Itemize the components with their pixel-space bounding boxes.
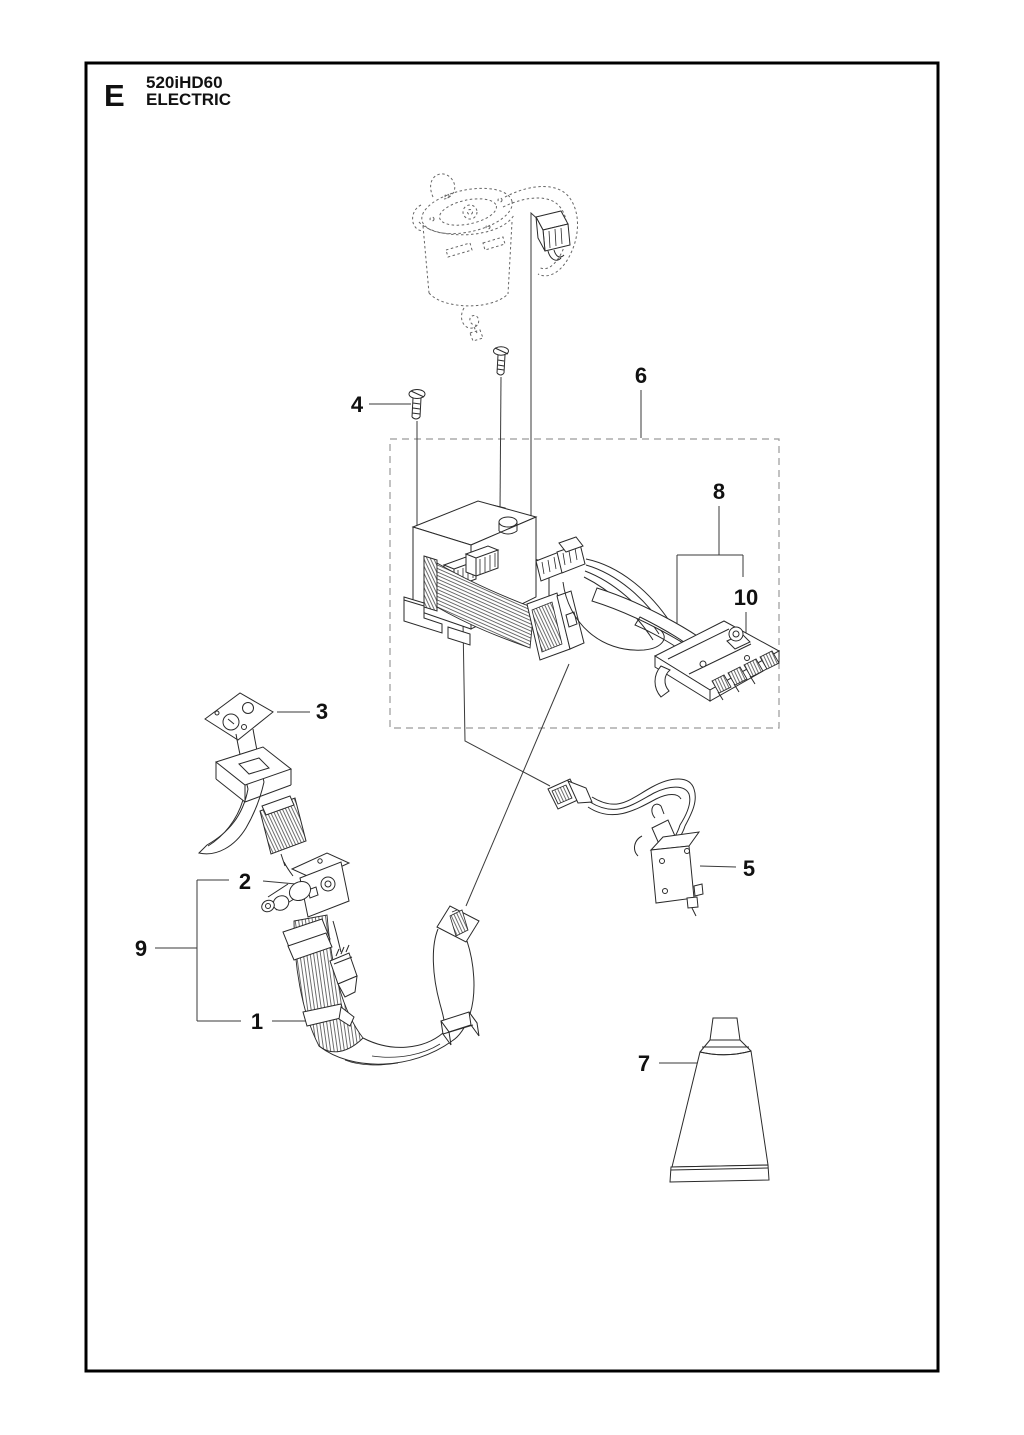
callout-5: 5 <box>743 856 755 881</box>
tube-body <box>672 1051 768 1167</box>
ribbon-connector-6 <box>527 591 584 660</box>
callout-9: 9 <box>135 936 147 961</box>
motor-pigtail <box>462 308 480 328</box>
section-title: ELECTRIC <box>146 90 231 109</box>
leader-ribbon-to-harness-connector <box>466 664 569 906</box>
callout-2: 2 <box>239 869 251 894</box>
harness-connector-pair <box>536 537 585 581</box>
leader-motor-cable <box>531 213 543 552</box>
section-letter: E <box>104 78 125 113</box>
leader-5 <box>700 866 736 867</box>
tube-crimp <box>670 1165 769 1182</box>
motor-vents <box>446 237 505 257</box>
control-unit-button <box>499 517 517 527</box>
switch-cable-5 <box>548 779 703 916</box>
screw-4a <box>409 390 425 420</box>
callout-7: 7 <box>638 1051 650 1076</box>
tube-cap <box>710 1018 740 1040</box>
callout-8: 8 <box>713 479 725 504</box>
callout-3: 3 <box>316 699 328 724</box>
plate-knob <box>729 627 743 641</box>
cable-wire <box>592 779 695 826</box>
ribbon-harness-1 <box>283 906 479 1065</box>
grease-tube-7 <box>670 1018 769 1182</box>
leader-2 <box>263 881 296 884</box>
harness-cable-clamp <box>441 1012 479 1045</box>
motor-cap-outline <box>418 181 517 241</box>
callout-1: 1 <box>251 1009 263 1034</box>
title-block: E 520iHD60 ELECTRIC <box>104 73 231 113</box>
plate-latch <box>655 666 670 697</box>
decal-plate <box>205 693 273 740</box>
callout-10: 10 <box>734 585 758 610</box>
motor-cable-connector <box>536 211 570 260</box>
micro-switch-5 <box>651 832 703 916</box>
rotary-switch-2 <box>260 853 349 917</box>
motor-body <box>423 222 512 294</box>
support-bracket <box>199 729 306 866</box>
cable-connector <box>548 779 592 809</box>
harness-end-connector <box>437 906 479 942</box>
keypad-decal-3 <box>205 693 273 740</box>
screw-4b <box>494 347 509 375</box>
leader-screw-b <box>500 377 501 512</box>
motor-assembly-phantom <box>413 174 578 341</box>
ribbon-header <box>424 556 437 611</box>
callout-6: 6 <box>635 363 647 388</box>
bracket-foot <box>199 782 264 854</box>
leader-bracket-9 <box>155 880 241 1021</box>
callout-4: 4 <box>351 392 364 417</box>
flat-cable-inner <box>363 1033 443 1047</box>
parts-diagram-page: E 520iHD60 ELECTRIC <box>0 0 1024 1435</box>
